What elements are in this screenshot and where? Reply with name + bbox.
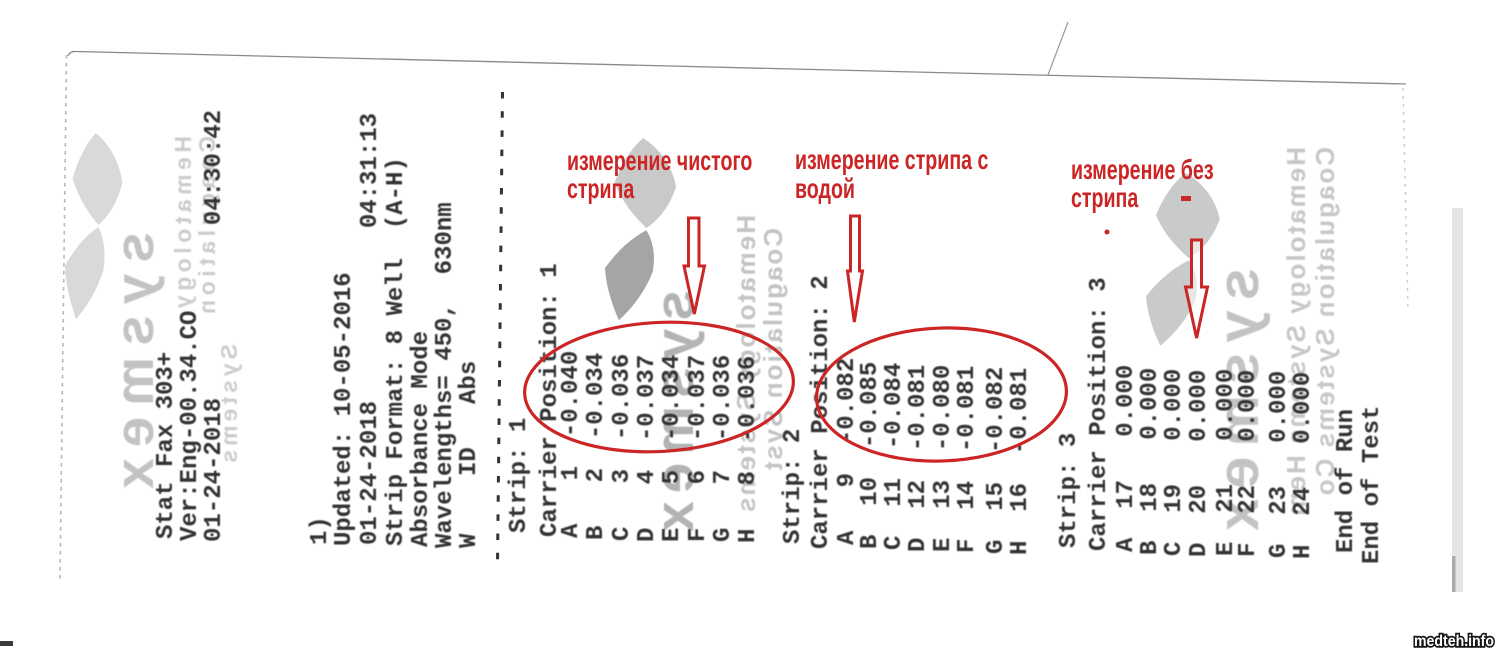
svg-text:medteh.info: medteh.info	[1414, 633, 1494, 650]
